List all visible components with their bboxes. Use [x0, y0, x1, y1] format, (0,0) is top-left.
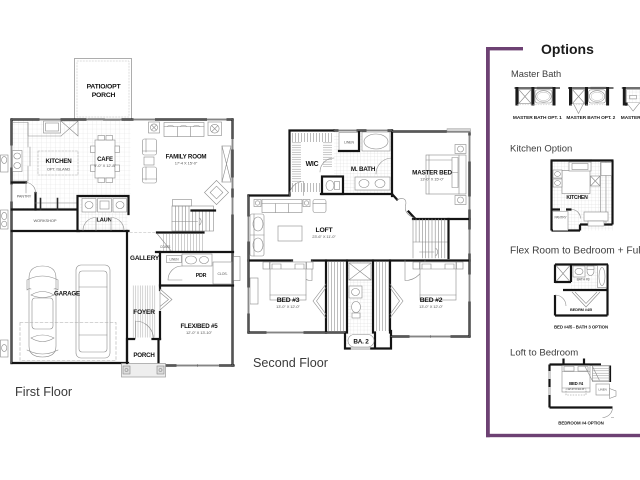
svg-text:LINEN: LINEN: [170, 258, 180, 262]
svg-text:PORCH: PORCH: [92, 92, 116, 99]
svg-text:Flex Room to Bedroom + Full Ba: Flex Room to Bedroom + Full Bath: [510, 246, 640, 257]
svg-text:MASTER BED: MASTER BED: [412, 170, 452, 177]
svg-text:Master Bath: Master Bath: [511, 69, 561, 79]
svg-text:BEDROOM #4 OPTION: BEDROOM #4 OPTION: [558, 421, 603, 426]
svg-text:BEDRM #4/5: BEDRM #4/5: [570, 307, 593, 312]
svg-text:PORCH: PORCH: [133, 352, 155, 359]
svg-text:COATS: COATS: [160, 245, 170, 249]
svg-text:WIC: WIC: [306, 161, 319, 168]
svg-text:First Floor: First Floor: [15, 385, 73, 399]
svg-text:MASTER BATH OPT. 2: MASTER BATH OPT. 2: [566, 115, 615, 121]
svg-text:PANTRY: PANTRY: [554, 216, 567, 220]
svg-text:23'-6" X 11'-0": 23'-6" X 11'-0": [312, 234, 336, 239]
svg-text:12'-0" X 11'-0": 12'-0" X 11'-0": [567, 387, 584, 391]
svg-text:17'-4 X 15'-0": 17'-4 X 15'-0": [175, 161, 198, 166]
svg-text:Second Floor: Second Floor: [253, 356, 328, 370]
svg-text:13'-0" X 12'-0": 13'-0" X 12'-0": [419, 304, 443, 309]
svg-text:Kitchen Option: Kitchen Option: [510, 144, 572, 155]
svg-text:CLOS.: CLOS.: [217, 272, 227, 276]
svg-text:BED #2: BED #2: [420, 297, 443, 304]
svg-text:M. BATH: M. BATH: [351, 166, 376, 173]
svg-text:LOFT: LOFT: [316, 227, 334, 234]
svg-text:MASTER B: MASTER B: [621, 115, 640, 121]
svg-text:KITCHEN: KITCHEN: [566, 195, 588, 201]
svg-text:WORKSHOP: WORKSHOP: [34, 218, 57, 223]
svg-text:BED #4: BED #4: [569, 381, 584, 386]
svg-text:BATH #3: BATH #3: [577, 278, 590, 282]
svg-text:GALLERY: GALLERY: [130, 255, 160, 262]
svg-text:13'-0" X 12'-0": 13'-0" X 12'-0": [276, 304, 300, 309]
svg-text:Options: Options: [541, 41, 594, 57]
svg-text:PATIO/OPT: PATIO/OPT: [87, 84, 122, 91]
svg-text:Loft to Bedroom: Loft to Bedroom: [510, 348, 578, 359]
svg-text:OPT. ISLAND: OPT. ISLAND: [47, 167, 71, 172]
svg-text:9'-0" X 12'-8": 9'-0" X 12'-8": [94, 163, 116, 168]
svg-text:BED #4/5 - BATH 3 OPTION: BED #4/5 - BATH 3 OPTION: [554, 325, 608, 330]
svg-text:FAMILY ROOM: FAMILY ROOM: [166, 154, 207, 161]
svg-text:GARAGE: GARAGE: [54, 291, 80, 298]
svg-text:FOYER: FOYER: [133, 309, 155, 316]
svg-text:KITCHEN: KITCHEN: [45, 158, 72, 165]
svg-text:PDR: PDR: [196, 273, 207, 279]
svg-text:BED #3: BED #3: [277, 297, 300, 304]
svg-text:LAUN: LAUN: [97, 218, 112, 224]
svg-text:MASTER BATH OPT. 1: MASTER BATH OPT. 1: [513, 115, 562, 121]
svg-text:PANTRY: PANTRY: [17, 195, 32, 199]
svg-text:LINEN: LINEN: [598, 388, 606, 392]
svg-text:BA. 2: BA. 2: [353, 339, 369, 346]
svg-text:LINEN: LINEN: [344, 141, 354, 145]
svg-text:FLEX/BED #5: FLEX/BED #5: [181, 323, 219, 330]
svg-text:13'-0" X 15'-0": 13'-0" X 15'-0": [420, 177, 444, 182]
svg-text:CAFE: CAFE: [97, 156, 113, 163]
svg-text:12'-0" X 13'-10": 12'-0" X 13'-10": [186, 330, 213, 335]
